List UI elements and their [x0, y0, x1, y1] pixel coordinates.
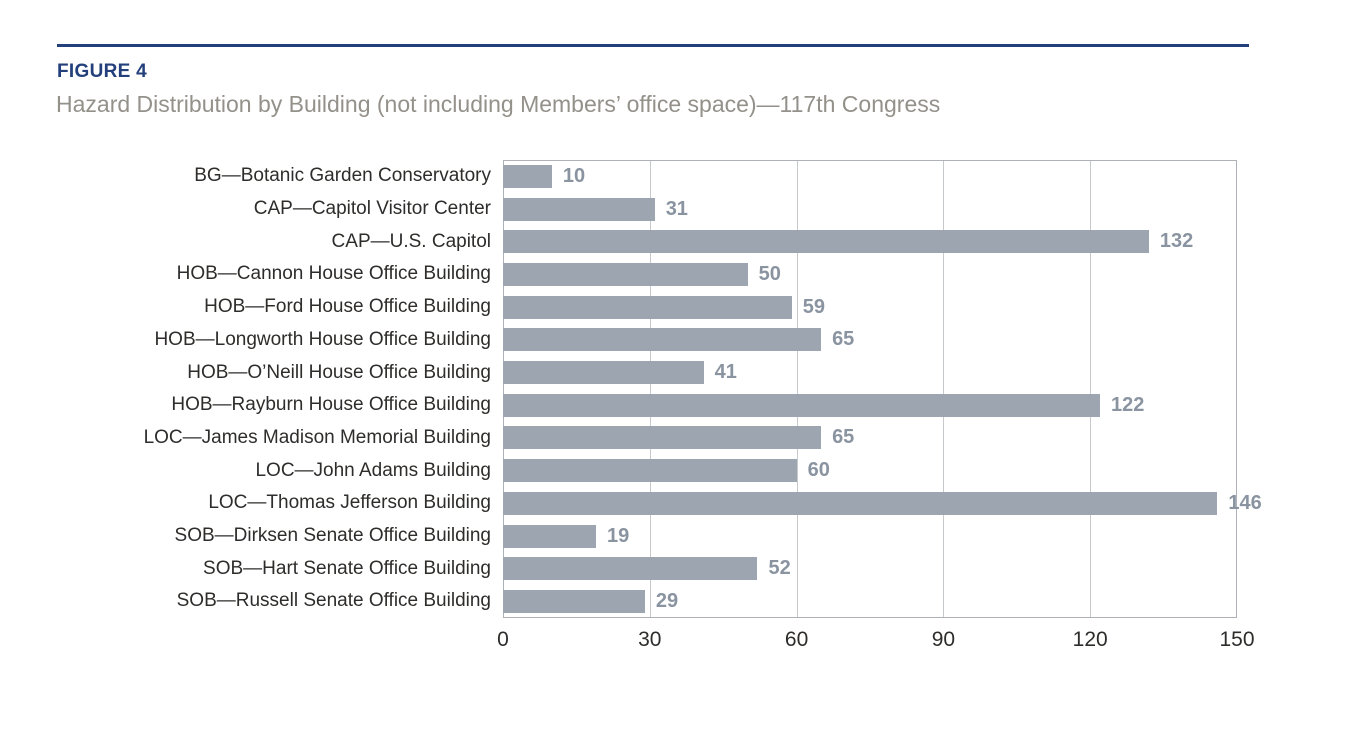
- category-label: CAP—Capitol Visitor Center: [0, 198, 503, 220]
- category-label: HOB—Longworth House Office Building: [0, 329, 503, 351]
- x-axis-tick: 90: [932, 628, 955, 652]
- x-axis: 0306090120150: [503, 628, 1237, 656]
- bar-track: 41: [503, 356, 1237, 389]
- chart-row: SOB—Hart Senate Office Building52: [0, 552, 1370, 585]
- category-label: BG—Botanic Garden Conservatory: [0, 165, 503, 187]
- value-label: 132: [1160, 230, 1193, 253]
- chart-row: HOB—Cannon House Office Building50: [0, 258, 1370, 291]
- value-label: 29: [656, 590, 678, 613]
- x-axis-tick: 0: [497, 628, 509, 652]
- chart-row: LOC—Thomas Jefferson Building146: [0, 487, 1370, 520]
- chart-row: BG—Botanic Garden Conservatory10: [0, 160, 1370, 193]
- x-axis-tick: 120: [1073, 628, 1108, 652]
- bar: [503, 165, 552, 188]
- category-label: CAP—U.S. Capitol: [0, 231, 503, 253]
- bar-track: 122: [503, 389, 1237, 422]
- bar: [503, 525, 596, 548]
- x-axis-tick: 60: [785, 628, 808, 652]
- category-label: LOC—James Madison Memorial Building: [0, 427, 503, 449]
- bar-track: 65: [503, 422, 1237, 455]
- bar: [503, 426, 821, 449]
- bar: [503, 263, 748, 286]
- bar-track: 10: [503, 160, 1237, 193]
- bar: [503, 361, 704, 384]
- value-label: 122: [1111, 394, 1144, 417]
- chart-row: CAP—Capitol Visitor Center31: [0, 193, 1370, 226]
- category-label: SOB—Dirksen Senate Office Building: [0, 525, 503, 547]
- value-label: 65: [832, 426, 854, 449]
- bar-track: 19: [503, 520, 1237, 553]
- chart-row: HOB—Rayburn House Office Building122: [0, 389, 1370, 422]
- chart-row: LOC—John Adams Building60: [0, 454, 1370, 487]
- figure-page: FIGURE 4 Hazard Distribution by Building…: [0, 0, 1370, 732]
- bar: [503, 198, 655, 221]
- bar-track: 146: [503, 487, 1237, 520]
- bar: [503, 394, 1100, 417]
- bar: [503, 590, 645, 613]
- bar-track: 59: [503, 291, 1237, 324]
- bar: [503, 459, 797, 482]
- bar-track: 132: [503, 225, 1237, 258]
- bar-track: 65: [503, 324, 1237, 357]
- category-label: HOB—Ford House Office Building: [0, 296, 503, 318]
- value-label: 31: [666, 198, 688, 221]
- category-label: HOB—Cannon House Office Building: [0, 263, 503, 285]
- bar: [503, 557, 757, 580]
- chart-row: HOB—O’Neill House Office Building41: [0, 356, 1370, 389]
- chart-row: SOB—Dirksen Senate Office Building19: [0, 520, 1370, 553]
- chart-row: CAP—U.S. Capitol132: [0, 225, 1370, 258]
- value-label: 60: [808, 459, 830, 482]
- bar: [503, 296, 792, 319]
- bar: [503, 492, 1217, 515]
- bar: [503, 328, 821, 351]
- value-label: 19: [607, 525, 629, 548]
- bar-track: 60: [503, 454, 1237, 487]
- bar-track: 50: [503, 258, 1237, 291]
- value-label: 10: [563, 165, 585, 188]
- category-label: HOB—Rayburn House Office Building: [0, 394, 503, 416]
- category-label: HOB—O’Neill House Office Building: [0, 362, 503, 384]
- chart-row: HOB—Longworth House Office Building65: [0, 324, 1370, 357]
- bar-track: 29: [503, 585, 1237, 618]
- hazard-bar-chart: BG—Botanic Garden Conservatory10CAP—Capi…: [0, 160, 1370, 670]
- x-axis-tick: 150: [1219, 628, 1254, 652]
- bar: [503, 230, 1149, 253]
- value-label: 59: [803, 296, 825, 319]
- value-label: 52: [768, 557, 790, 580]
- figure-number-label: FIGURE 4: [57, 61, 147, 83]
- bar-track: 31: [503, 193, 1237, 226]
- top-rule-divider: [57, 44, 1249, 47]
- category-label: LOC—Thomas Jefferson Building: [0, 492, 503, 514]
- category-label: SOB—Hart Senate Office Building: [0, 558, 503, 580]
- bar-track: 52: [503, 552, 1237, 585]
- chart-row: SOB—Russell Senate Office Building29: [0, 585, 1370, 618]
- figure-title: Hazard Distribution by Building (not inc…: [56, 91, 940, 118]
- chart-row: HOB—Ford House Office Building59: [0, 291, 1370, 324]
- value-label: 41: [715, 361, 737, 384]
- category-label: SOB—Russell Senate Office Building: [0, 590, 503, 612]
- chart-row: LOC—James Madison Memorial Building65: [0, 422, 1370, 455]
- chart-rows: BG—Botanic Garden Conservatory10CAP—Capi…: [0, 160, 1370, 618]
- value-label: 65: [832, 328, 854, 351]
- value-label: 50: [759, 263, 781, 286]
- x-axis-tick: 30: [638, 628, 661, 652]
- category-label: LOC—John Adams Building: [0, 460, 503, 482]
- value-label: 146: [1228, 492, 1261, 515]
